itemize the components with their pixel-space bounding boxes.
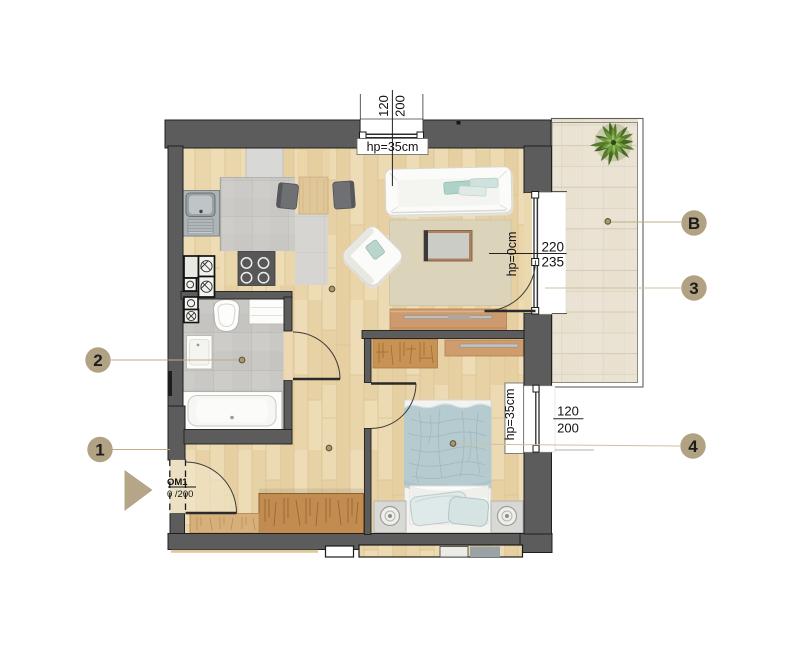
svg-text:3: 3 (689, 279, 698, 298)
svg-text:hp=35cm: hp=35cm (503, 389, 517, 441)
svg-text:120: 120 (376, 95, 391, 117)
svg-text:120: 120 (557, 404, 579, 419)
svg-text:4: 4 (688, 437, 698, 456)
svg-text:235: 235 (542, 255, 565, 270)
svg-text:0 /200: 0 /200 (167, 489, 193, 500)
svg-text:OM1: OM1 (167, 477, 188, 488)
svg-text:B: B (688, 214, 700, 233)
svg-text:hp=0cm: hp=0cm (505, 232, 519, 277)
svg-text:1: 1 (95, 441, 104, 460)
svg-text:2: 2 (93, 351, 102, 370)
svg-text:220: 220 (542, 240, 565, 255)
svg-text:200: 200 (393, 95, 408, 117)
svg-text:200: 200 (557, 421, 579, 436)
